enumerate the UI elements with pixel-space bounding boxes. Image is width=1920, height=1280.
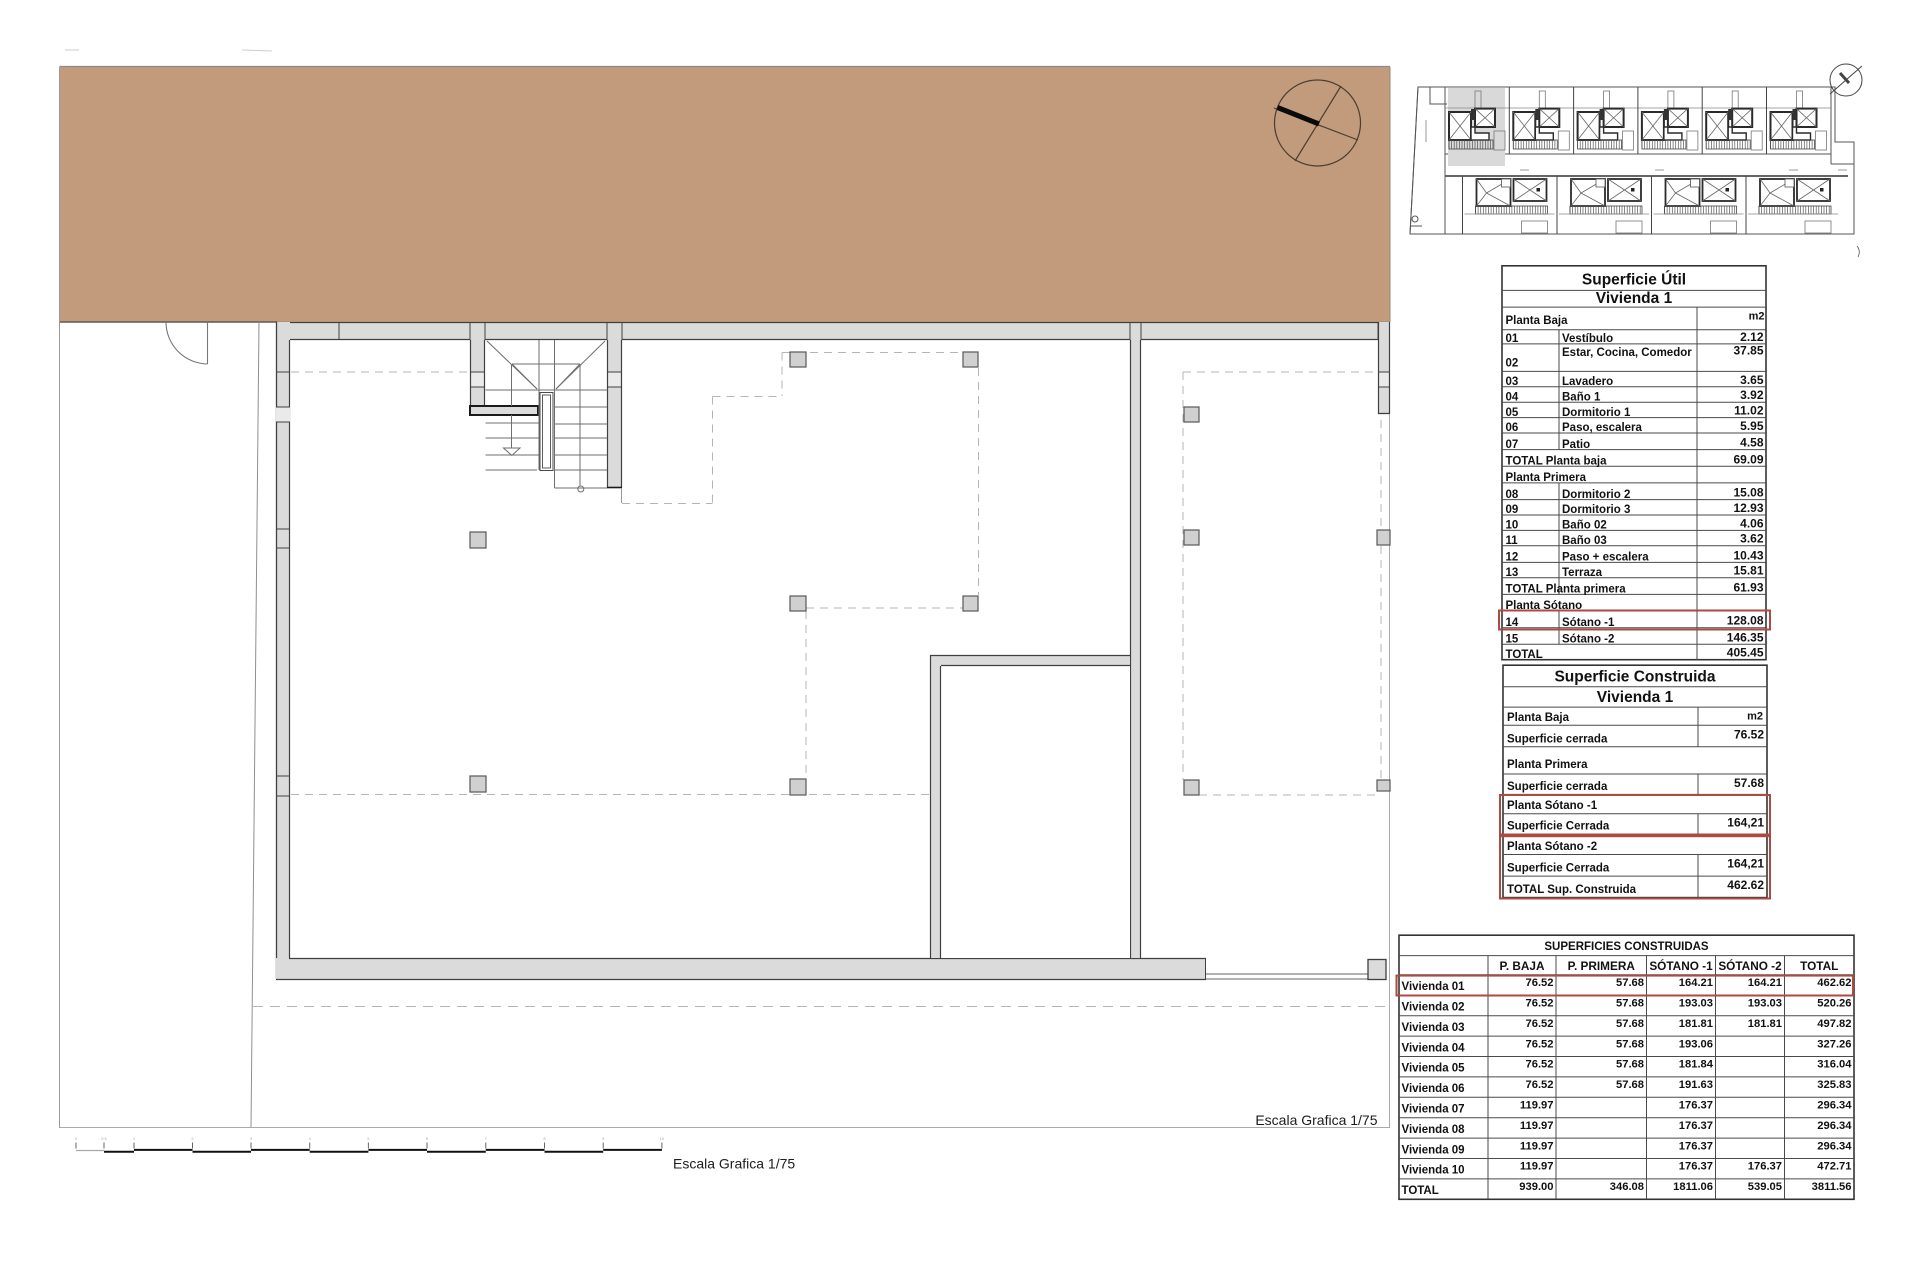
svg-text:119.97: 119.97: [1520, 1120, 1554, 1132]
svg-text:2: 2: [191, 1136, 194, 1141]
svg-text:Superficie cerrada: Superficie cerrada: [1507, 781, 1608, 793]
svg-text:5.95: 5.95: [1740, 419, 1764, 433]
svg-text:1811.06: 1811.06: [1673, 1181, 1713, 1193]
svg-text:9: 9: [602, 1136, 605, 1141]
svg-text:176.37: 176.37: [1748, 1161, 1782, 1173]
svg-text:14: 14: [1506, 617, 1519, 629]
svg-text:13: 13: [1506, 567, 1519, 579]
svg-text:Dormitorio 3: Dormitorio 3: [1562, 504, 1630, 516]
svg-text:462.62: 462.62: [1727, 878, 1764, 892]
svg-text:Superficie Cerrada: Superficie Cerrada: [1507, 863, 1610, 875]
svg-text:Vivienda 06: Vivienda 06: [1402, 1083, 1465, 1095]
svg-text:06: 06: [1506, 422, 1519, 434]
svg-text:Superficie Construida: Superficie Construida: [1554, 669, 1715, 686]
svg-text:Vestíbulo: Vestíbulo: [1562, 333, 1613, 345]
svg-text:10.43: 10.43: [1733, 548, 1763, 562]
svg-text:405.45: 405.45: [1727, 646, 1764, 660]
svg-text:Vivienda 09: Vivienda 09: [1402, 1144, 1465, 1156]
svg-text:6: 6: [426, 1136, 429, 1141]
svg-text:76.52: 76.52: [1526, 977, 1554, 989]
svg-text:Vivienda 04: Vivienda 04: [1402, 1042, 1466, 1054]
svg-text:164.21: 164.21: [1748, 977, 1782, 989]
svg-text:939.00: 939.00: [1519, 1181, 1553, 1193]
svg-text:TOTAL Planta baja: TOTAL Planta baja: [1506, 456, 1608, 468]
svg-text:3.62: 3.62: [1740, 532, 1764, 546]
svg-text:497.82: 497.82: [1817, 1018, 1851, 1030]
svg-text:11.02: 11.02: [1734, 404, 1764, 418]
svg-text:Sótano -2: Sótano -2: [1562, 634, 1614, 646]
svg-text:03: 03: [1506, 376, 1519, 388]
svg-text:57.68: 57.68: [1616, 1018, 1644, 1030]
svg-text:Baño 02: Baño 02: [1562, 520, 1607, 532]
svg-text:5: 5: [367, 1136, 370, 1141]
svg-text:Paso, escalera: Paso, escalera: [1562, 422, 1643, 434]
svg-text:119.97: 119.97: [1520, 1161, 1554, 1173]
svg-text:Vivienda 02: Vivienda 02: [1402, 1002, 1465, 1014]
svg-text:146.35: 146.35: [1727, 630, 1764, 644]
svg-text:4.06: 4.06: [1740, 516, 1764, 530]
svg-text:37.85: 37.85: [1733, 344, 1763, 358]
svg-text:181.81: 181.81: [1748, 1018, 1782, 1030]
svg-text:Patio: Patio: [1562, 439, 1590, 451]
svg-text:1: 1: [133, 1136, 136, 1141]
svg-text:3.92: 3.92: [1740, 388, 1764, 402]
svg-text:04: 04: [1506, 391, 1519, 403]
svg-text:SUPERFICIES CONSTRUIDAS: SUPERFICIES CONSTRUIDAS: [1544, 941, 1709, 953]
svg-text:128.08: 128.08: [1727, 614, 1764, 628]
svg-text:Vivienda 03: Vivienda 03: [1402, 1022, 1465, 1034]
svg-text:08: 08: [1506, 489, 1519, 501]
svg-text:164,21: 164,21: [1727, 857, 1764, 871]
svg-text:8: 8: [543, 1136, 546, 1141]
svg-text:02: 02: [1506, 357, 1519, 369]
svg-text:12.93: 12.93: [1733, 501, 1763, 515]
svg-text:462.62: 462.62: [1817, 977, 1851, 989]
svg-text:m2: m2: [1747, 711, 1763, 723]
svg-text:57.68: 57.68: [1734, 776, 1764, 790]
svg-text:296.34: 296.34: [1817, 1120, 1852, 1132]
svg-text:76.52: 76.52: [1526, 1018, 1554, 1030]
svg-text:4.58: 4.58: [1740, 436, 1764, 450]
svg-text:76.52: 76.52: [1526, 1038, 1554, 1050]
svg-text:76.52: 76.52: [1526, 1059, 1554, 1071]
svg-text:Planta Primera: Planta Primera: [1507, 759, 1588, 771]
svg-text:57.68: 57.68: [1616, 1059, 1644, 1071]
svg-text:176.37: 176.37: [1679, 1140, 1713, 1152]
svg-text:Superficie cerrada: Superficie cerrada: [1507, 733, 1608, 745]
svg-text:Planta Baja: Planta Baja: [1506, 315, 1569, 327]
svg-text:Dormitorio 1: Dormitorio 1: [1562, 407, 1631, 419]
svg-text:Planta Sótano -1: Planta Sótano -1: [1507, 800, 1598, 812]
svg-text:57.68: 57.68: [1616, 998, 1644, 1010]
svg-text:Baño 1: Baño 1: [1562, 391, 1601, 403]
svg-text:3811.56: 3811.56: [1812, 1181, 1852, 1193]
svg-text:Baño 03: Baño 03: [1562, 535, 1607, 547]
svg-text:61.93: 61.93: [1733, 580, 1763, 594]
svg-text:191.63: 191.63: [1679, 1079, 1713, 1091]
svg-text:m2: m2: [1749, 310, 1765, 322]
svg-text:76.52: 76.52: [1526, 1079, 1554, 1091]
svg-text:01: 01: [1506, 333, 1519, 345]
svg-text:Paso + escalera: Paso + escalera: [1562, 552, 1649, 564]
svg-text:181.81: 181.81: [1679, 1018, 1713, 1030]
svg-text:176.37: 176.37: [1679, 1161, 1713, 1173]
svg-text:76.52: 76.52: [1734, 727, 1764, 741]
svg-text:15.81: 15.81: [1733, 564, 1763, 578]
svg-text:57.68: 57.68: [1616, 977, 1644, 989]
svg-text:539.05: 539.05: [1748, 1181, 1782, 1193]
svg-text:327.26: 327.26: [1817, 1038, 1851, 1050]
svg-text:164,21: 164,21: [1727, 816, 1764, 830]
svg-text:520.26: 520.26: [1817, 998, 1851, 1010]
svg-text:Vivienda 05: Vivienda 05: [1402, 1063, 1466, 1075]
svg-text:176.37: 176.37: [1679, 1120, 1713, 1132]
svg-text:09: 09: [1506, 504, 1519, 516]
svg-text:P. PRIMERA: P. PRIMERA: [1568, 959, 1636, 973]
svg-text:SÓTANO -2: SÓTANO -2: [1718, 959, 1782, 973]
svg-text:76.52: 76.52: [1526, 998, 1554, 1010]
svg-text:11: 11: [1506, 535, 1519, 547]
svg-text:P. BAJA: P. BAJA: [1499, 959, 1545, 973]
svg-text:15.08: 15.08: [1733, 486, 1763, 500]
svg-text:10: 10: [1506, 520, 1519, 532]
svg-text:296.34: 296.34: [1817, 1100, 1852, 1112]
svg-text:10: 10: [660, 1136, 665, 1141]
svg-text:57.68: 57.68: [1616, 1038, 1644, 1050]
svg-text:TOTAL: TOTAL: [1800, 959, 1838, 973]
svg-text:181.84: 181.84: [1679, 1059, 1714, 1071]
svg-text:TOTAL: TOTAL: [1402, 1185, 1439, 1197]
svg-text:Escala Grafica 1/75: Escala Grafica 1/75: [673, 1156, 795, 1172]
svg-text:15: 15: [1506, 634, 1519, 646]
svg-text:Superficie Cerrada: Superficie Cerrada: [1507, 821, 1610, 833]
svg-text:Planta Baja: Planta Baja: [1507, 712, 1570, 724]
svg-text:296.34: 296.34: [1817, 1140, 1852, 1152]
svg-text:Vivienda 07: Vivienda 07: [1402, 1104, 1465, 1116]
svg-text:316.04: 316.04: [1817, 1059, 1852, 1071]
svg-text:Vivienda 08: Vivienda 08: [1402, 1124, 1466, 1136]
svg-text:4: 4: [309, 1136, 312, 1141]
svg-text:472.71: 472.71: [1817, 1161, 1851, 1173]
svg-text:Planta Primera: Planta Primera: [1506, 472, 1587, 484]
svg-text:0: 0: [75, 1136, 78, 1141]
svg-text:Superficie Útil: Superficie Útil: [1582, 271, 1686, 289]
svg-text:57.68: 57.68: [1616, 1079, 1644, 1091]
svg-text:Escala Grafica 1/75: Escala Grafica 1/75: [1255, 1112, 1377, 1128]
svg-text:119.97: 119.97: [1520, 1100, 1554, 1112]
svg-text:TOTAL Sup. Construida: TOTAL Sup. Construida: [1507, 884, 1637, 896]
svg-text:2.12: 2.12: [1740, 330, 1764, 344]
svg-text:119.97: 119.97: [1520, 1140, 1554, 1152]
svg-text:Vivienda 01: Vivienda 01: [1402, 981, 1466, 993]
svg-text:0.5: 0.5: [101, 1136, 107, 1141]
svg-text:193.06: 193.06: [1679, 1038, 1713, 1050]
svg-text:3: 3: [250, 1136, 253, 1141]
svg-text:346.08: 346.08: [1610, 1181, 1644, 1193]
svg-text:07: 07: [1506, 439, 1519, 451]
svg-text:Planta Sótano -2: Planta Sótano -2: [1507, 841, 1597, 853]
svg-text:TOTAL: TOTAL: [1506, 649, 1543, 661]
svg-text:SÓTANO -1: SÓTANO -1: [1649, 959, 1713, 973]
svg-text:193.03: 193.03: [1748, 998, 1782, 1010]
svg-text:Terraza: Terraza: [1562, 567, 1603, 579]
svg-text:Lavadero: Lavadero: [1562, 376, 1613, 388]
svg-text:193.03: 193.03: [1679, 998, 1713, 1010]
svg-text:325.83: 325.83: [1817, 1079, 1851, 1091]
svg-text:164.21: 164.21: [1679, 977, 1713, 989]
svg-text:Vivienda 1: Vivienda 1: [1596, 290, 1673, 307]
svg-text:TOTAL Planta primera: TOTAL Planta primera: [1506, 584, 1627, 596]
svg-text:Sótano -1: Sótano -1: [1562, 617, 1615, 629]
svg-text:Estar, Cocina, Comedor: Estar, Cocina, Comedor: [1562, 347, 1692, 359]
svg-text:Vivienda 1: Vivienda 1: [1597, 689, 1674, 706]
svg-text:05: 05: [1506, 407, 1519, 419]
svg-text:Dormitorio 2: Dormitorio 2: [1562, 489, 1630, 501]
svg-text:Vivienda 10: Vivienda 10: [1402, 1165, 1465, 1177]
svg-text:7: 7: [485, 1136, 488, 1141]
svg-text:176.37: 176.37: [1679, 1100, 1713, 1112]
svg-text:12: 12: [1506, 552, 1519, 564]
svg-text:3.65: 3.65: [1740, 373, 1764, 387]
svg-text:69.09: 69.09: [1733, 452, 1763, 466]
